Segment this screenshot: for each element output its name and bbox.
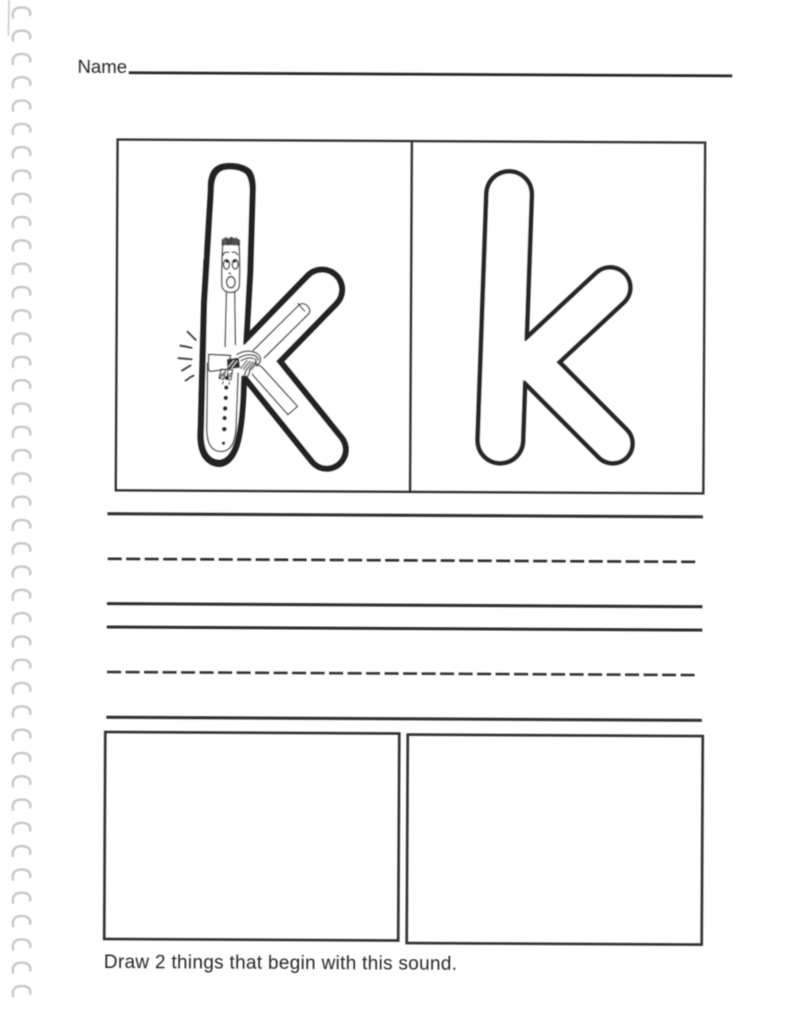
svg-text:Name: Name — [77, 56, 127, 77]
svg-text:Draw 2 things that begin with: Draw 2 things that begin with this sound… — [104, 952, 458, 975]
